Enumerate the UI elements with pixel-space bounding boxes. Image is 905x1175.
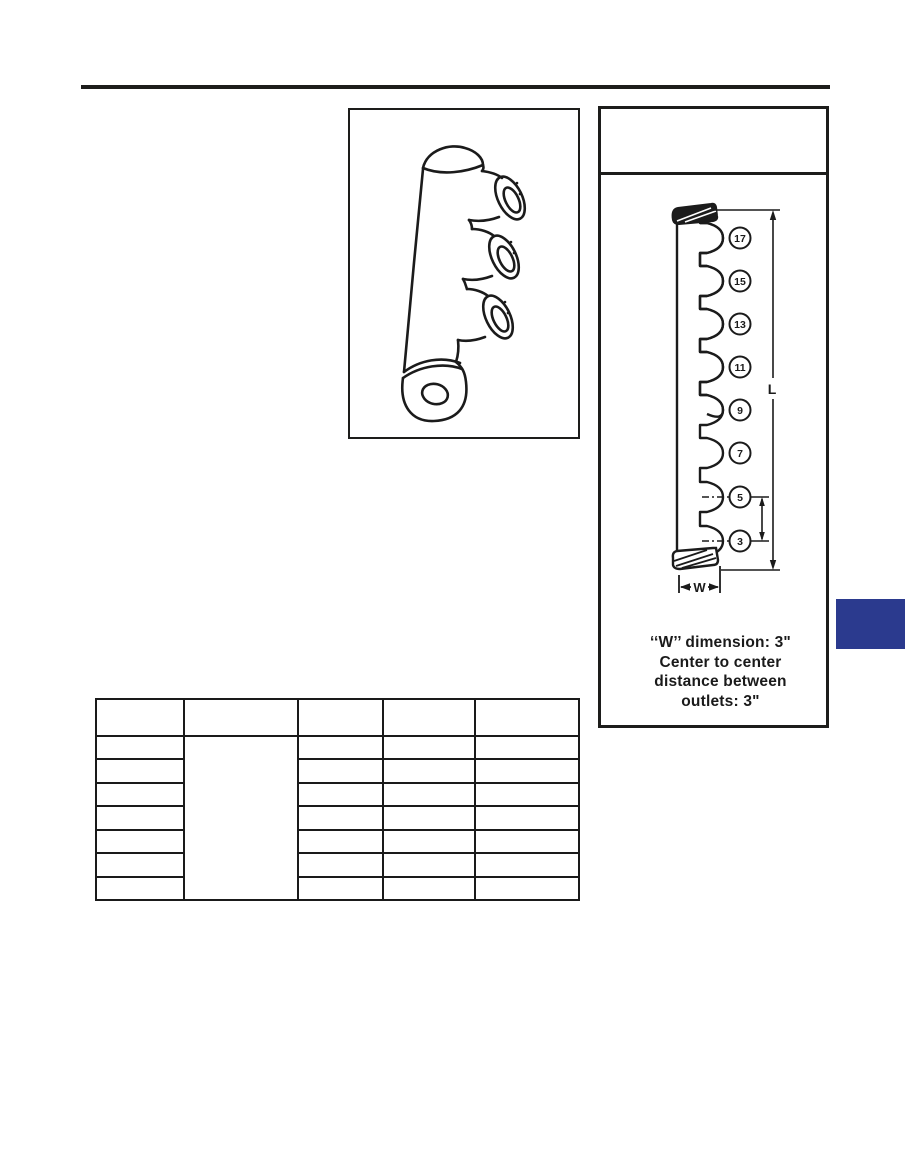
width-dim-label: W (693, 580, 706, 595)
outlet-number: 3 (737, 536, 743, 548)
table-cell (298, 806, 383, 829)
table-row (96, 877, 579, 900)
spec-table-header-row (96, 699, 579, 736)
table-cell (96, 783, 184, 806)
manifold-isometric-drawing (350, 110, 577, 436)
table-cell (298, 736, 383, 759)
dimension-diagram-panel: L W 17 1 (598, 106, 829, 728)
table-cell (475, 783, 579, 806)
table-row (96, 759, 579, 782)
table-cell (298, 759, 383, 782)
spec-table-body (96, 736, 579, 900)
table-header-cell (383, 699, 475, 736)
outlet-number: 9 (737, 405, 743, 417)
table-cell (383, 783, 475, 806)
table-cell (298, 830, 383, 853)
table-cell (184, 736, 298, 900)
caption-line: ‘‘W’’ dimension: 3" (615, 633, 826, 653)
table-cell (475, 736, 579, 759)
table-cell (96, 853, 184, 876)
table-cell (298, 877, 383, 900)
product-drawing-panel (348, 108, 580, 439)
table-cell (383, 877, 475, 900)
table-row (96, 783, 579, 806)
diagram-panel-header (601, 109, 826, 169)
outlet-number: 13 (734, 319, 746, 331)
caption-line: outlets: 3" (615, 692, 826, 712)
table-row (96, 736, 579, 759)
bottom-cap (673, 548, 718, 569)
table-cell (96, 830, 184, 853)
table-cell (298, 783, 383, 806)
table-cell (96, 806, 184, 829)
top-rule (81, 85, 830, 89)
spec-table (95, 698, 580, 901)
top-cap (673, 204, 718, 224)
table-cell (96, 736, 184, 759)
table-row (96, 853, 579, 876)
catalog-page: L W 17 1 (0, 0, 905, 1175)
page-edge-tab (836, 599, 905, 649)
table-header-cell (184, 699, 298, 736)
table-header-cell (475, 699, 579, 736)
outlet-number: 5 (737, 492, 743, 504)
header-separator (601, 172, 826, 175)
center-to-center-dimension (751, 497, 769, 541)
outlet-number: 7 (737, 448, 743, 460)
caption-line: distance between (615, 672, 826, 692)
length-dimension: L (712, 210, 781, 570)
table-cell (298, 853, 383, 876)
table-cell (475, 830, 579, 853)
table-cell (383, 806, 475, 829)
table-cell (475, 759, 579, 782)
manifold-dimension-diagram: L W 17 1 (601, 177, 826, 627)
outlet-callouts: 17 15 13 11 9 7 5 3 (730, 228, 751, 552)
centerline-5-3 (702, 497, 730, 541)
table-cell (475, 806, 579, 829)
table-cell (96, 877, 184, 900)
dimension-caption: ‘‘W’’ dimension: 3" Center to center dis… (601, 633, 826, 711)
outlet-number: 11 (734, 362, 745, 374)
caption-line: Center to center (615, 653, 826, 673)
table-row (96, 806, 579, 829)
table-cell (383, 830, 475, 853)
table-cell (96, 759, 184, 782)
table-header-cell (96, 699, 184, 736)
table-cell (475, 853, 579, 876)
length-dim-label: L (768, 381, 777, 397)
outlet-number: 15 (734, 276, 746, 288)
table-cell (383, 853, 475, 876)
table-cell (383, 736, 475, 759)
table-cell (383, 759, 475, 782)
table-header-cell (298, 699, 383, 736)
outlet-number: 17 (734, 233, 746, 245)
table-cell (475, 877, 579, 900)
width-dimension: W (679, 566, 720, 595)
table-row (96, 830, 579, 853)
